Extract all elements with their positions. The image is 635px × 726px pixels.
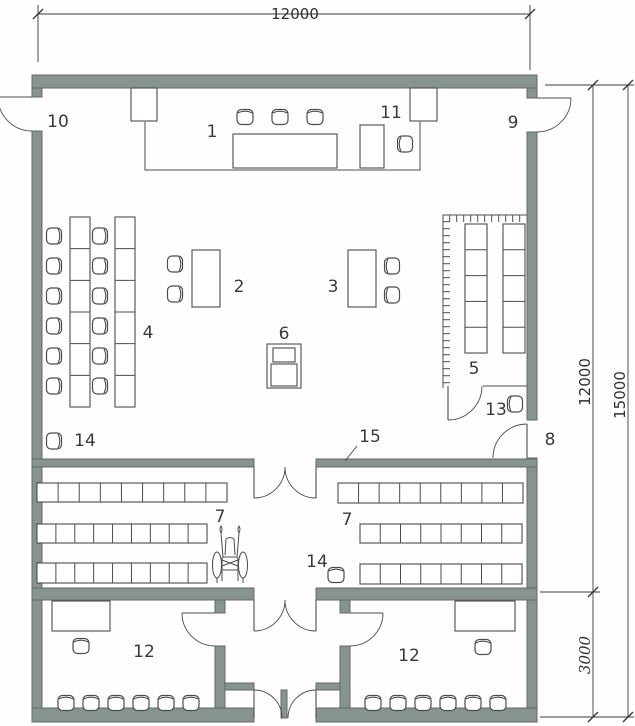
dimension-label: 12000: [576, 358, 594, 406]
chair-icon: [93, 378, 108, 394]
chair-icon: [47, 318, 62, 334]
room-label: 5: [469, 359, 480, 379]
dimension-label: 3000: [576, 635, 594, 674]
chair-icon: [83, 696, 99, 711]
shelf-row: [360, 524, 522, 543]
room-label: 12: [398, 646, 420, 666]
furniture-rect: [348, 250, 376, 307]
wall-segment: [340, 600, 350, 613]
room-label: 8: [545, 430, 556, 450]
chair-icon: [133, 696, 149, 711]
chair-icon: [490, 696, 506, 711]
room-label: 1: [207, 122, 218, 142]
room-label: 12: [133, 642, 155, 662]
shelf-outline: [37, 524, 207, 543]
chair-icon: [168, 256, 183, 272]
shelf-row: [37, 483, 227, 502]
furniture-rect: [131, 88, 157, 121]
furniture-rect: [410, 88, 437, 121]
chair-icon: [47, 348, 62, 364]
wall-segment: [316, 683, 340, 690]
wall-segment: [32, 88, 42, 97]
chair-icon: [237, 110, 253, 125]
shelf-outline: [37, 483, 227, 502]
furniture-rect: [271, 364, 297, 386]
shelf-row: [360, 564, 522, 584]
room-label: 10: [47, 112, 69, 132]
shelf-row: [37, 563, 207, 583]
shelf-outline: [503, 224, 525, 353]
dimension-label: 12000: [271, 5, 319, 23]
wall-segment: [32, 459, 254, 467]
floor-plan-page: 1200012000150003000123456778910111212131…: [0, 0, 635, 726]
furniture-rect: [360, 125, 384, 168]
chair-icon: [93, 228, 108, 244]
wall-segment: [225, 683, 254, 690]
room-label: 13: [485, 400, 507, 420]
room-label: 3: [328, 277, 339, 297]
chair-icon: [108, 696, 124, 711]
chair-icon: [47, 288, 62, 304]
chair-icon: [475, 640, 491, 655]
chair-icon: [47, 433, 62, 449]
wall-segment: [32, 131, 42, 722]
room-label: 6: [279, 324, 290, 344]
chair-icon: [440, 696, 456, 711]
chair-icon: [365, 696, 381, 711]
wall-segment: [340, 646, 350, 708]
wall-segment: [527, 132, 537, 420]
wall-segment: [316, 588, 537, 600]
shelf-outline: [465, 224, 487, 353]
shelf-row: [70, 217, 90, 407]
chair-icon: [508, 396, 523, 412]
shelf-row: [503, 224, 525, 353]
room-label: 14: [306, 552, 328, 572]
wall-segment: [316, 459, 537, 467]
furniture-rect: [192, 250, 220, 307]
room-label: 4: [143, 323, 154, 343]
wall-segment: [32, 75, 537, 88]
chair-icon: [158, 696, 174, 711]
wall-segment: [215, 600, 225, 613]
shelf-outline: [37, 563, 207, 583]
floor-plan-svg: 1200012000150003000123456778910111212131…: [0, 0, 635, 726]
chair-icon: [93, 318, 108, 334]
shelf-row: [115, 217, 135, 407]
furniture-rect: [52, 601, 110, 631]
room-label: 14: [74, 431, 96, 451]
chair-icon: [73, 639, 89, 654]
chair-icon: [390, 696, 406, 711]
room-label: 2: [234, 277, 245, 297]
room-label: 11: [380, 103, 402, 123]
chair-icon: [93, 258, 108, 274]
shelf-row: [37, 524, 207, 543]
chair-icon: [307, 110, 323, 125]
chair-icon: [328, 568, 344, 583]
wall-segment: [527, 88, 537, 98]
room-label: 9: [508, 113, 519, 133]
chair-icon: [47, 228, 62, 244]
chair-icon: [272, 110, 288, 125]
chair-icon: [47, 258, 62, 274]
chair-icon: [58, 696, 74, 711]
furniture-rect: [273, 348, 295, 362]
chair-icon: [415, 696, 431, 711]
room-label: 7: [342, 510, 353, 530]
shelf-row: [465, 224, 487, 353]
chair-icon: [93, 348, 108, 364]
room-label: 7: [215, 507, 226, 527]
room-label: 15: [359, 427, 381, 447]
furniture-rect: [233, 134, 337, 168]
chair-icon: [47, 378, 62, 394]
chair-icon: [168, 286, 183, 302]
wall-segment: [32, 588, 254, 600]
wall-segment: [215, 646, 225, 708]
shelf-row: [338, 483, 523, 503]
chair-icon: [385, 287, 400, 303]
chair-icon: [183, 696, 199, 711]
chair-icon: [93, 288, 108, 304]
chair-icon: [465, 696, 481, 711]
shelf-outline: [338, 483, 523, 503]
chair-icon: [385, 258, 400, 274]
furniture-rect: [455, 601, 515, 631]
chair-icon: [398, 136, 413, 152]
dimension-label: 15000: [611, 371, 629, 419]
